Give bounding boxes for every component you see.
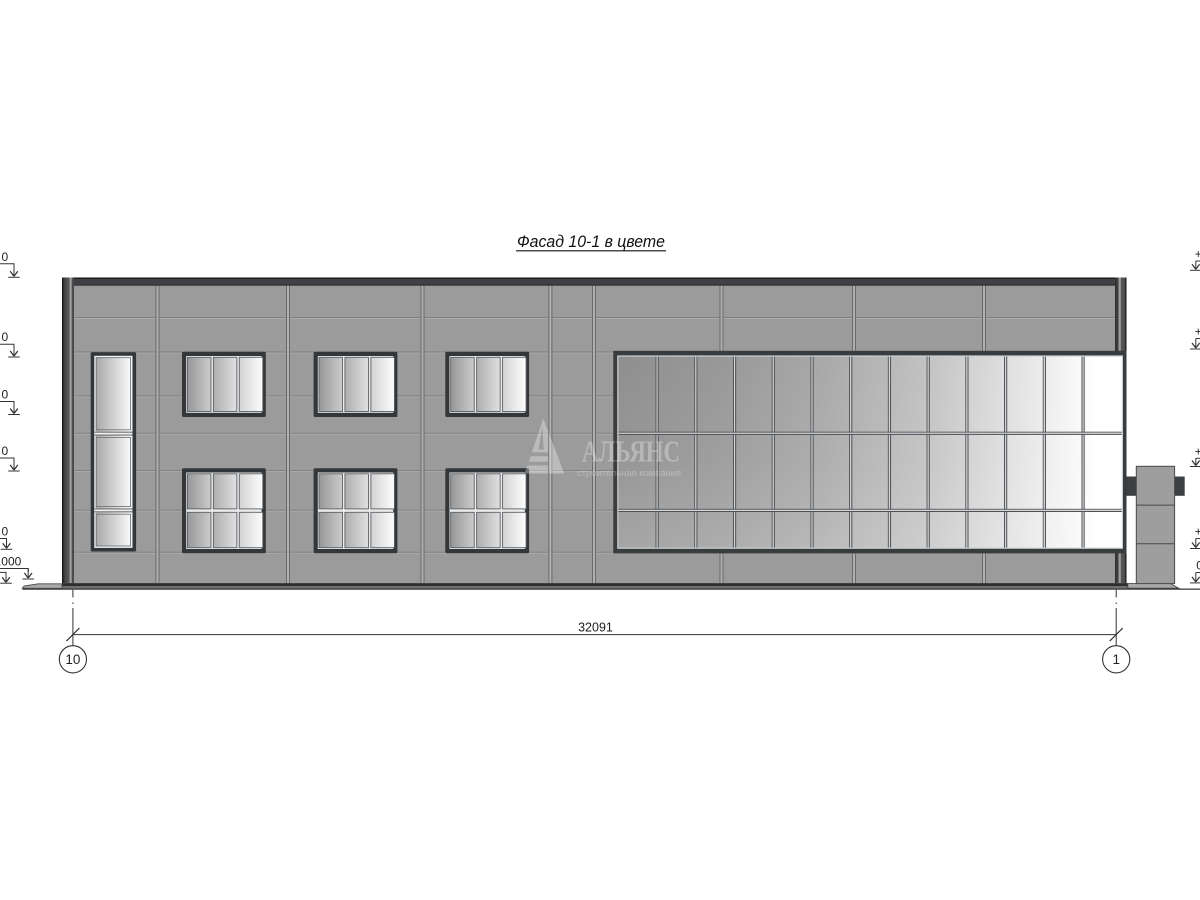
svg-text:0: 0 — [2, 444, 9, 458]
svg-text:АЛЬЯНС: АЛЬЯНС — [582, 434, 680, 469]
svg-text:10: 10 — [65, 652, 80, 667]
svg-text:0: 0 — [2, 388, 9, 402]
svg-text:+8.100: +8.100 — [1195, 247, 1200, 261]
svg-text:0: 0 — [2, 330, 9, 344]
svg-text:строительная компания: строительная компания — [577, 468, 681, 479]
svg-text:32091: 32091 — [578, 621, 613, 635]
svg-text:0.000: 0.000 — [1196, 559, 1200, 573]
svg-text:0: 0 — [2, 250, 9, 264]
svg-text:0.000: 0.000 — [0, 555, 22, 569]
svg-text:Фасад 10-1 в цвете: Фасад 10-1 в цвете — [517, 232, 665, 251]
svg-text:+0.900: +0.900 — [1195, 525, 1200, 539]
svg-text:+3.600: +3.600 — [1195, 444, 1200, 458]
svg-text:0: 0 — [2, 525, 9, 539]
svg-text:+6.600: +6.600 — [1195, 325, 1200, 339]
svg-text:1: 1 — [1112, 652, 1120, 667]
